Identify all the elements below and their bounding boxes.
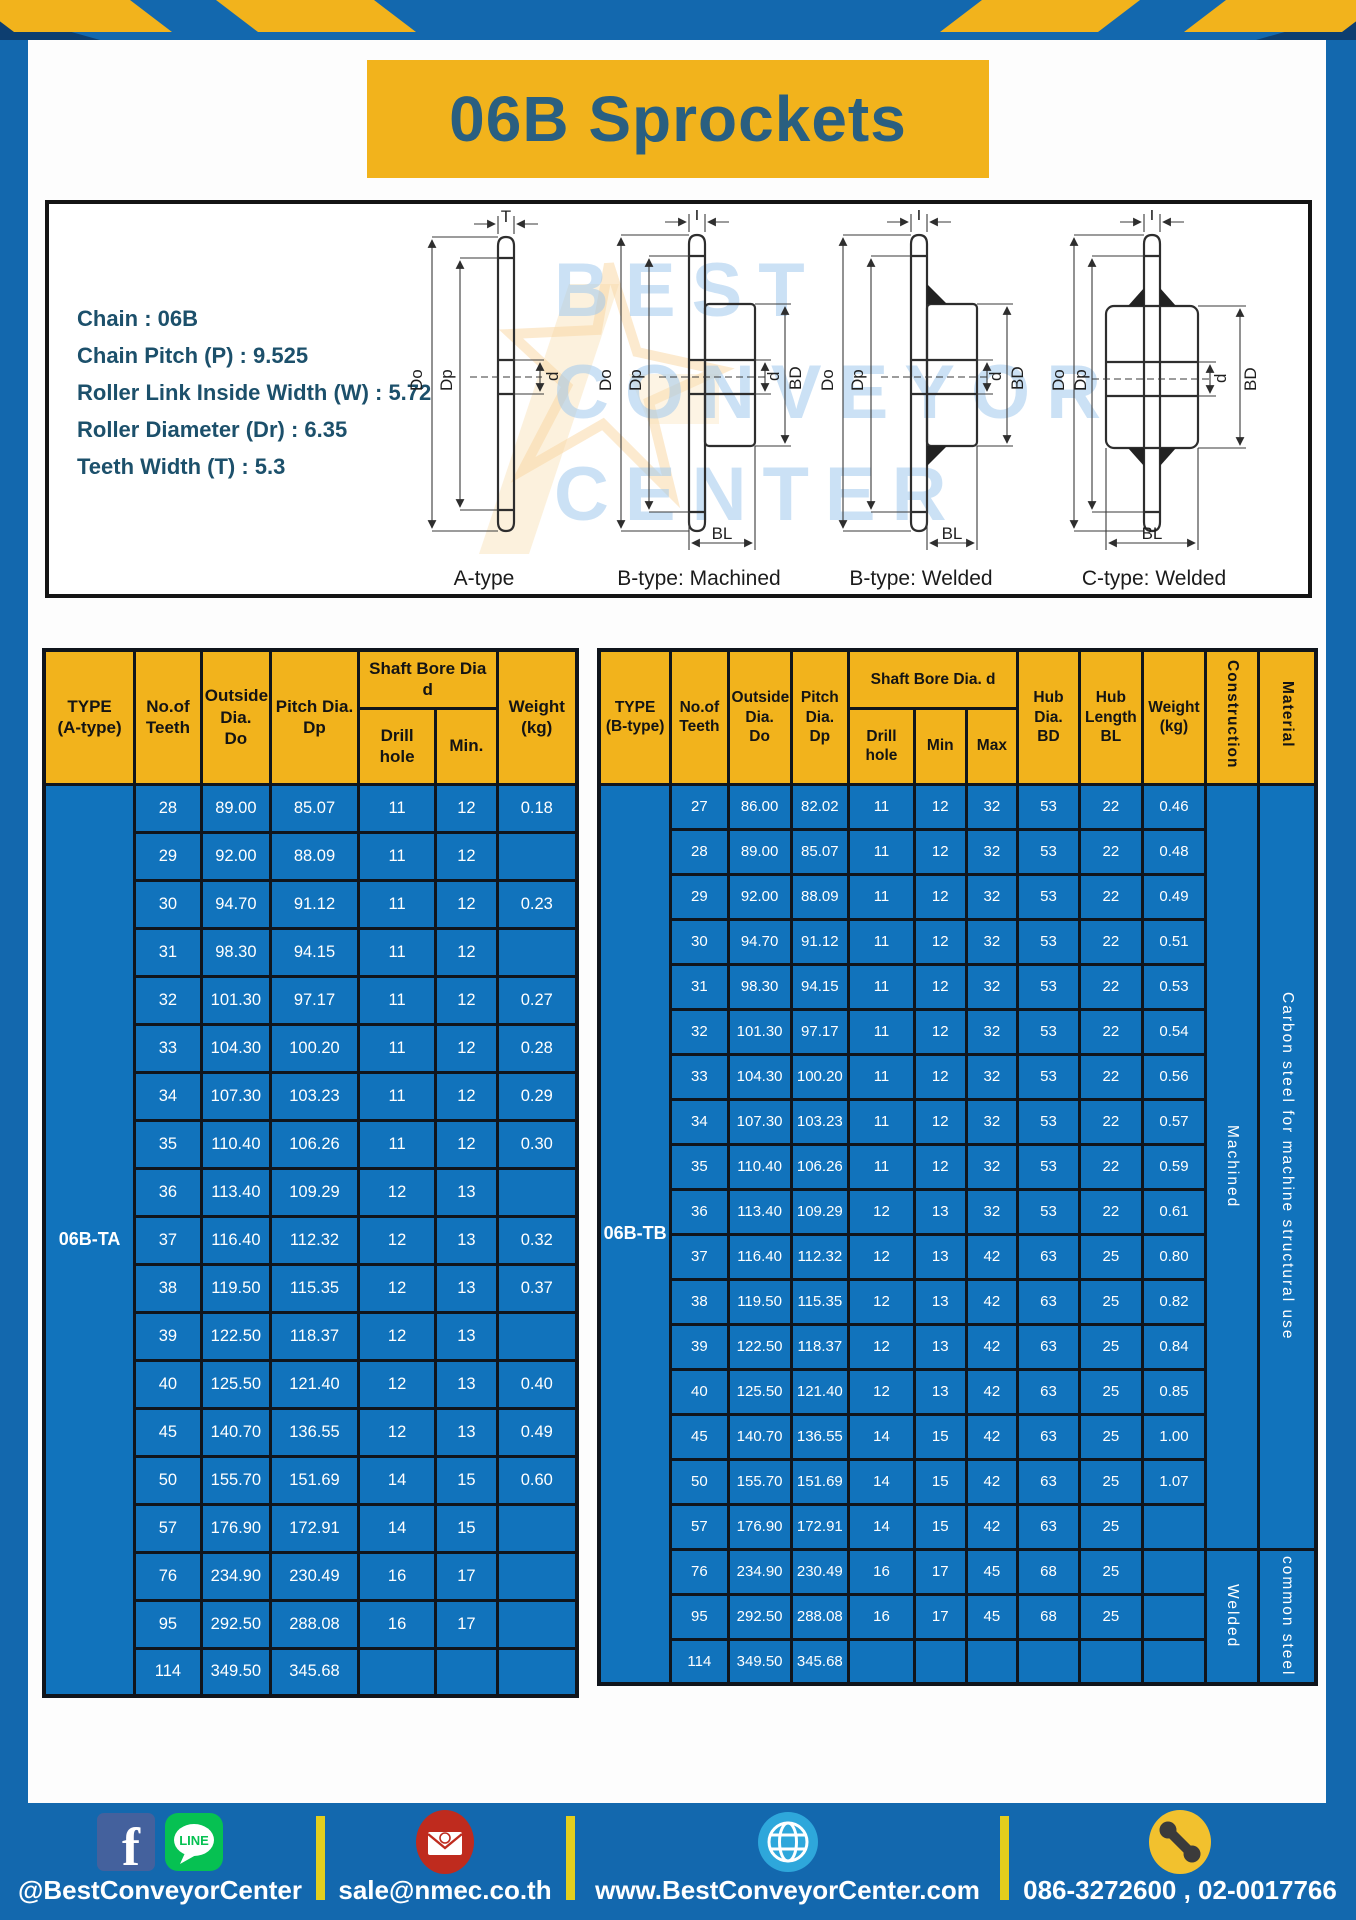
data-cell: 63 [1018, 1414, 1080, 1459]
table-row: 06B-TB2786.0082.0211123253220.46Machined… [599, 784, 1316, 829]
data-cell: 22 [1079, 919, 1142, 964]
data-cell: 0.46 [1142, 784, 1205, 829]
data-cell: 98.30 [201, 928, 270, 976]
data-cell: 11 [849, 874, 915, 919]
data-cell: 11 [358, 1072, 435, 1120]
data-cell: 176.90 [201, 1504, 270, 1552]
data-cell: 32 [966, 1099, 1018, 1144]
data-cell: 136.55 [791, 1414, 848, 1459]
data-cell [358, 1648, 435, 1696]
data-cell: 1.07 [1142, 1459, 1205, 1504]
data-cell: 12 [358, 1216, 435, 1264]
data-cell: 12 [436, 928, 497, 976]
data-cell: 345.68 [791, 1639, 848, 1684]
data-cell: 94.15 [271, 928, 359, 976]
data-cell: 53 [1018, 1099, 1080, 1144]
table-row: 76234.90230.491617456825Weldedcommon ste… [599, 1549, 1316, 1594]
data-cell: 0.60 [497, 1456, 577, 1504]
data-cell: 28 [135, 784, 202, 832]
data-cell: 151.69 [791, 1459, 848, 1504]
data-cell [497, 1504, 577, 1552]
data-cell: 45 [966, 1549, 1018, 1594]
data-cell [497, 1168, 577, 1216]
data-cell: 95 [671, 1594, 728, 1639]
data-cell: 12 [849, 1189, 915, 1234]
right-frame-border [1326, 40, 1356, 1803]
data-cell: 16 [849, 1549, 915, 1594]
diagram-caption: A-type [379, 567, 589, 591]
data-cell: 22 [1079, 829, 1142, 874]
data-cell: 234.90 [728, 1549, 791, 1594]
dim-label-bl: BL [942, 524, 963, 543]
data-cell: 53 [1018, 919, 1080, 964]
data-cell [1142, 1639, 1205, 1684]
data-cell: 0.80 [1142, 1234, 1205, 1279]
data-cell: 113.40 [201, 1168, 270, 1216]
construction-cell: Machined [1206, 784, 1259, 1549]
data-cell: 14 [849, 1504, 915, 1549]
data-cell: 12 [436, 1120, 497, 1168]
data-cell: 176.90 [728, 1504, 791, 1549]
diagram-b-type-machined: T Do Dp d BD BL B-type: Machined [589, 210, 809, 591]
dim-label-t: T [692, 210, 702, 224]
data-cell: 95 [135, 1600, 202, 1648]
data-cell: 0.29 [497, 1072, 577, 1120]
data-cell: 97.17 [271, 976, 359, 1024]
data-cell: 68 [1018, 1594, 1080, 1639]
data-cell: 63 [1018, 1459, 1080, 1504]
data-cell: 11 [358, 976, 435, 1024]
data-cell: 0.82 [1142, 1279, 1205, 1324]
data-cell: 89.00 [728, 829, 791, 874]
data-cell: 25 [1079, 1279, 1142, 1324]
data-cell: 34 [135, 1072, 202, 1120]
data-cell: 32 [966, 1009, 1018, 1054]
data-cell: 125.50 [201, 1360, 270, 1408]
data-cell: 12 [436, 976, 497, 1024]
data-cell: 288.08 [271, 1600, 359, 1648]
data-cell: 106.26 [271, 1120, 359, 1168]
data-cell: 57 [671, 1504, 728, 1549]
data-cell: 15 [436, 1456, 497, 1504]
svg-text:LINE: LINE [179, 1833, 209, 1848]
data-cell: 11 [849, 1054, 915, 1099]
data-cell: 345.68 [271, 1648, 359, 1696]
data-cell: 86.00 [728, 784, 791, 829]
data-cell: 12 [914, 1144, 966, 1189]
data-cell: 0.49 [497, 1408, 577, 1456]
col-header-material: Material [1259, 650, 1316, 784]
dim-label-do: Do [818, 369, 837, 391]
data-cell: 85.07 [271, 784, 359, 832]
data-cell: 349.50 [201, 1648, 270, 1696]
data-cell: 36 [135, 1168, 202, 1216]
footer-social-handle: @BestConveyorCenter [18, 1875, 302, 1906]
data-cell [1142, 1504, 1205, 1549]
data-cell: 13 [436, 1264, 497, 1312]
data-cell: 32 [966, 1054, 1018, 1099]
col-header-shaft-bore: Shaft Bore Dia. d [849, 650, 1018, 708]
dim-label-bd: BD [1008, 366, 1027, 390]
data-cell: 11 [358, 928, 435, 976]
svg-text:f: f [122, 1817, 141, 1871]
data-cell: 292.50 [728, 1594, 791, 1639]
top-banner-stripes [0, 0, 1356, 40]
data-cell: 14 [358, 1456, 435, 1504]
data-cell: 32 [135, 976, 202, 1024]
data-cell: 25 [1079, 1414, 1142, 1459]
dim-label-bd: BD [786, 366, 805, 390]
data-cell: 28 [671, 829, 728, 874]
data-cell: 40 [135, 1360, 202, 1408]
data-cell: 155.70 [728, 1459, 791, 1504]
data-cell [497, 1312, 577, 1360]
data-cell: 125.50 [728, 1369, 791, 1414]
data-cell: 1.00 [1142, 1414, 1205, 1459]
page-title-box: 06B Sprockets [367, 60, 989, 178]
data-cell: 17 [914, 1549, 966, 1594]
data-cell: 16 [849, 1594, 915, 1639]
sprocket-drawing-c-welded: T Do Dp d BD BL [1048, 210, 1260, 560]
data-cell: 12 [358, 1168, 435, 1216]
data-cell: 16 [358, 1552, 435, 1600]
data-cell: 0.56 [1142, 1054, 1205, 1099]
data-cell: 32 [966, 784, 1018, 829]
data-cell: 11 [849, 1099, 915, 1144]
data-cell: 39 [135, 1312, 202, 1360]
data-cell [497, 1600, 577, 1648]
data-cell: 27 [671, 784, 728, 829]
data-cell: 0.49 [1142, 874, 1205, 919]
data-cell: 11 [849, 1009, 915, 1054]
data-cell: 97.17 [791, 1009, 848, 1054]
data-cell: 118.37 [791, 1324, 848, 1369]
data-cell: 25 [1079, 1594, 1142, 1639]
data-cell: 76 [671, 1549, 728, 1594]
data-cell: 17 [914, 1594, 966, 1639]
data-cell: 63 [1018, 1324, 1080, 1369]
data-cell: 32 [966, 1144, 1018, 1189]
data-cell: 110.40 [728, 1144, 791, 1189]
data-cell: 32 [966, 874, 1018, 919]
data-cell: 33 [135, 1024, 202, 1072]
table-row: 06B-TA2889.0085.0711120.18 [44, 784, 577, 832]
col-header-type: TYPE (B-type) [599, 650, 671, 784]
dim-label-bl: BL [1142, 524, 1163, 543]
data-cell: 0.51 [1142, 919, 1205, 964]
data-cell: 14 [849, 1414, 915, 1459]
data-cell: 0.61 [1142, 1189, 1205, 1234]
data-cell [1079, 1639, 1142, 1684]
data-cell: 12 [436, 1024, 497, 1072]
dim-label-dp: Dp [848, 369, 867, 391]
data-cell: 12 [914, 784, 966, 829]
data-cell: 121.40 [791, 1369, 848, 1414]
data-cell: 12 [849, 1324, 915, 1369]
data-cell: 63 [1018, 1279, 1080, 1324]
data-cell: 33 [671, 1054, 728, 1099]
data-cell: 11 [358, 1120, 435, 1168]
data-cell: 42 [966, 1414, 1018, 1459]
data-cell: 112.32 [271, 1216, 359, 1264]
data-cell: 25 [1079, 1549, 1142, 1594]
data-cell: 12 [358, 1264, 435, 1312]
data-cell: 110.40 [201, 1120, 270, 1168]
dim-label-d: d [986, 372, 1005, 381]
data-cell: 118.37 [271, 1312, 359, 1360]
data-cell: 12 [914, 1054, 966, 1099]
data-cell [1018, 1639, 1080, 1684]
data-cell: 76 [135, 1552, 202, 1600]
data-cell: 13 [436, 1408, 497, 1456]
data-cell: 45 [135, 1408, 202, 1456]
data-cell: 0.53 [1142, 964, 1205, 1009]
data-cell: 12 [358, 1312, 435, 1360]
data-cell: 12 [358, 1360, 435, 1408]
data-cell: 63 [1018, 1504, 1080, 1549]
data-cell: 230.49 [791, 1549, 848, 1594]
data-cell: 11 [358, 784, 435, 832]
data-cell: 101.30 [201, 976, 270, 1024]
footer-contact-bar: f LINE @BestConveyorCenter [0, 1803, 1356, 1920]
data-cell: 53 [1018, 784, 1080, 829]
data-cell: 116.40 [728, 1234, 791, 1279]
diagram-caption: B-type: Machined [589, 567, 809, 591]
data-cell: 57 [135, 1504, 202, 1552]
data-cell: 121.40 [271, 1360, 359, 1408]
data-cell: 29 [135, 832, 202, 880]
data-cell: 172.91 [271, 1504, 359, 1552]
data-cell: 25 [1079, 1324, 1142, 1369]
data-cell: 13 [914, 1189, 966, 1234]
footer-divider [316, 1816, 325, 1900]
dim-label-d: d [543, 372, 562, 381]
data-cell: 13 [436, 1168, 497, 1216]
data-cell: 25 [1079, 1504, 1142, 1549]
data-cell: 0.54 [1142, 1009, 1205, 1054]
data-cell: 15 [914, 1459, 966, 1504]
data-cell: 11 [358, 880, 435, 928]
col-header-outside-dia: Outside Dia. Do [728, 650, 791, 784]
data-cell: 140.70 [728, 1414, 791, 1459]
data-cell: 100.20 [271, 1024, 359, 1072]
data-cell: 38 [135, 1264, 202, 1312]
data-cell: 34 [671, 1099, 728, 1144]
data-cell: 12 [436, 784, 497, 832]
dim-label-do: Do [596, 369, 615, 391]
line-icon: LINE [165, 1813, 223, 1871]
data-cell [436, 1648, 497, 1696]
data-cell: 0.28 [497, 1024, 577, 1072]
data-cell: 11 [358, 832, 435, 880]
dim-label-do: Do [1049, 369, 1068, 391]
material-cell: common steel [1259, 1549, 1316, 1684]
data-cell: 22 [1079, 874, 1142, 919]
facebook-icon: f [97, 1813, 155, 1871]
data-cell: 94.70 [728, 919, 791, 964]
dim-label-dp: Dp [437, 369, 456, 391]
data-cell: 11 [849, 1144, 915, 1189]
data-cell: 37 [671, 1234, 728, 1279]
data-cell: 91.12 [271, 880, 359, 928]
data-cell: 113.40 [728, 1189, 791, 1234]
col-header-type: TYPE (A-type) [44, 650, 135, 784]
data-cell: 12 [914, 874, 966, 919]
sprocket-drawing-b-welded: T Do Dp d BD BL [815, 210, 1027, 560]
data-cell: 29 [671, 874, 728, 919]
data-cell: 35 [135, 1120, 202, 1168]
data-cell [849, 1639, 915, 1684]
table-b-type: TYPE (B-type) No.of Teeth Outside Dia. D… [597, 648, 1318, 1686]
data-cell: 94.70 [201, 880, 270, 928]
data-cell: 115.35 [271, 1264, 359, 1312]
data-cell: 53 [1018, 1054, 1080, 1099]
data-cell: 88.09 [271, 832, 359, 880]
data-cell: 14 [849, 1459, 915, 1504]
dim-label-bl: BL [712, 524, 733, 543]
data-cell: 155.70 [201, 1456, 270, 1504]
data-cell: 100.20 [791, 1054, 848, 1099]
data-cell: 106.26 [791, 1144, 848, 1189]
data-cell: 104.30 [201, 1024, 270, 1072]
data-cell: 11 [849, 784, 915, 829]
dim-label-dp: Dp [626, 369, 645, 391]
data-cell: 92.00 [201, 832, 270, 880]
data-cell: 22 [1079, 1054, 1142, 1099]
data-cell: 0.48 [1142, 829, 1205, 874]
data-cell: 0.23 [497, 880, 577, 928]
dim-label-t: T [1147, 210, 1157, 224]
data-cell: 53 [1018, 874, 1080, 919]
phone-icon [1149, 1810, 1211, 1874]
data-cell: 0.27 [497, 976, 577, 1024]
data-cell: 15 [436, 1504, 497, 1552]
data-cell: 16 [358, 1600, 435, 1648]
dim-label-t: T [914, 210, 924, 224]
data-cell: 13 [914, 1279, 966, 1324]
data-cell: 292.50 [201, 1600, 270, 1648]
data-cell: 0.85 [1142, 1369, 1205, 1414]
data-cell: 53 [1018, 1189, 1080, 1234]
type-label-cell: 06B-TB [599, 784, 671, 1684]
data-cell [1142, 1549, 1205, 1594]
data-cell: 53 [1018, 829, 1080, 874]
data-cell [497, 928, 577, 976]
data-cell [1142, 1594, 1205, 1639]
data-cell: 114 [135, 1648, 202, 1696]
construction-cell: Welded [1206, 1549, 1259, 1684]
diagram-c-type-welded: T Do Dp d BD BL C-type: Welded [1039, 210, 1269, 591]
data-cell: 0.30 [497, 1120, 577, 1168]
sprocket-drawing-a: T Do Dp d [402, 210, 567, 560]
data-cell: 13 [914, 1234, 966, 1279]
data-cell: 85.07 [791, 829, 848, 874]
data-cell: 30 [135, 880, 202, 928]
data-cell: 112.32 [791, 1234, 848, 1279]
material-cell: Carbon steel for machine structural use [1259, 784, 1316, 1549]
footer-phone-numbers: 086-3272600 , 02-0017766 [1023, 1875, 1337, 1906]
data-cell: 12 [849, 1369, 915, 1414]
footer-email: sale@nmec.co.th [338, 1875, 551, 1906]
data-cell: 40 [671, 1369, 728, 1414]
col-header-construction: Construction [1206, 650, 1259, 784]
col-header-shaft-bore: Shaft Bore Dia d [358, 650, 497, 708]
data-cell [914, 1639, 966, 1684]
data-cell: 32 [966, 964, 1018, 1009]
dim-label-d: d [764, 372, 783, 381]
data-cell: 109.29 [271, 1168, 359, 1216]
data-cell: 0.32 [497, 1216, 577, 1264]
data-cell: 36 [671, 1189, 728, 1234]
data-cell: 0.84 [1142, 1324, 1205, 1369]
data-cell: 42 [966, 1369, 1018, 1414]
data-cell: 92.00 [728, 874, 791, 919]
page-title: 06B Sprockets [449, 82, 907, 156]
footer-divider [1000, 1816, 1009, 1900]
data-cell: 32 [966, 1189, 1018, 1234]
data-cell: 39 [671, 1324, 728, 1369]
data-cell: 13 [914, 1369, 966, 1414]
data-cell: 349.50 [728, 1639, 791, 1684]
data-cell: 37 [135, 1216, 202, 1264]
footer-section-phone: 086-3272600 , 02-0017766 [1014, 1803, 1346, 1920]
data-cell: 13 [436, 1312, 497, 1360]
data-cell: 0.59 [1142, 1144, 1205, 1189]
diagram-b-type-welded: T Do Dp d BD BL B-type: Welded [811, 210, 1031, 591]
data-cell: 288.08 [791, 1594, 848, 1639]
col-header-pitch-dia: Pitch Dia. Dp [271, 650, 359, 784]
footer-section-website: www.BestConveyorCenter.com [580, 1803, 995, 1920]
data-cell [497, 1648, 577, 1696]
data-cell: 53 [1018, 1144, 1080, 1189]
left-frame-border [0, 40, 28, 1803]
sprocket-drawing-b-machined: T Do Dp d BD BL [593, 210, 805, 560]
diagram-panel: BEST CONVEYOR CENTER Chain : 06B Chain P… [45, 200, 1312, 598]
col-header-drill-hole: Drill hole [849, 708, 915, 784]
diagram-a-type: T Do Dp d A-type [379, 210, 589, 591]
data-cell: 0.37 [497, 1264, 577, 1312]
col-header-min: Min [914, 708, 966, 784]
data-cell: 15 [914, 1504, 966, 1549]
data-cell: 35 [671, 1144, 728, 1189]
diagram-caption: C-type: Welded [1039, 567, 1269, 591]
data-cell: 31 [671, 964, 728, 1009]
data-cell: 12 [914, 1099, 966, 1144]
data-cell: 42 [966, 1459, 1018, 1504]
data-cell: 53 [1018, 1009, 1080, 1054]
footer-divider [566, 1816, 575, 1900]
data-cell: 32 [671, 1009, 728, 1054]
dim-label-do: Do [407, 369, 426, 391]
data-cell: 15 [914, 1414, 966, 1459]
dim-label-t: T [500, 210, 510, 226]
data-cell: 50 [671, 1459, 728, 1504]
col-header-drill-hole: Drill hole [358, 708, 435, 784]
data-cell: 12 [436, 880, 497, 928]
data-cell: 104.30 [728, 1054, 791, 1099]
data-cell: 22 [1079, 1144, 1142, 1189]
data-cell: 22 [1079, 1099, 1142, 1144]
data-cell: 91.12 [791, 919, 848, 964]
data-cell: 42 [966, 1234, 1018, 1279]
data-cell [966, 1639, 1018, 1684]
dim-label-bd: BD [1241, 367, 1260, 391]
data-cell: 101.30 [728, 1009, 791, 1054]
footer-website: www.BestConveyorCenter.com [595, 1875, 980, 1906]
data-cell: 140.70 [201, 1408, 270, 1456]
data-cell: 0.57 [1142, 1099, 1205, 1144]
col-header-weight: Weight (kg) [497, 650, 577, 784]
